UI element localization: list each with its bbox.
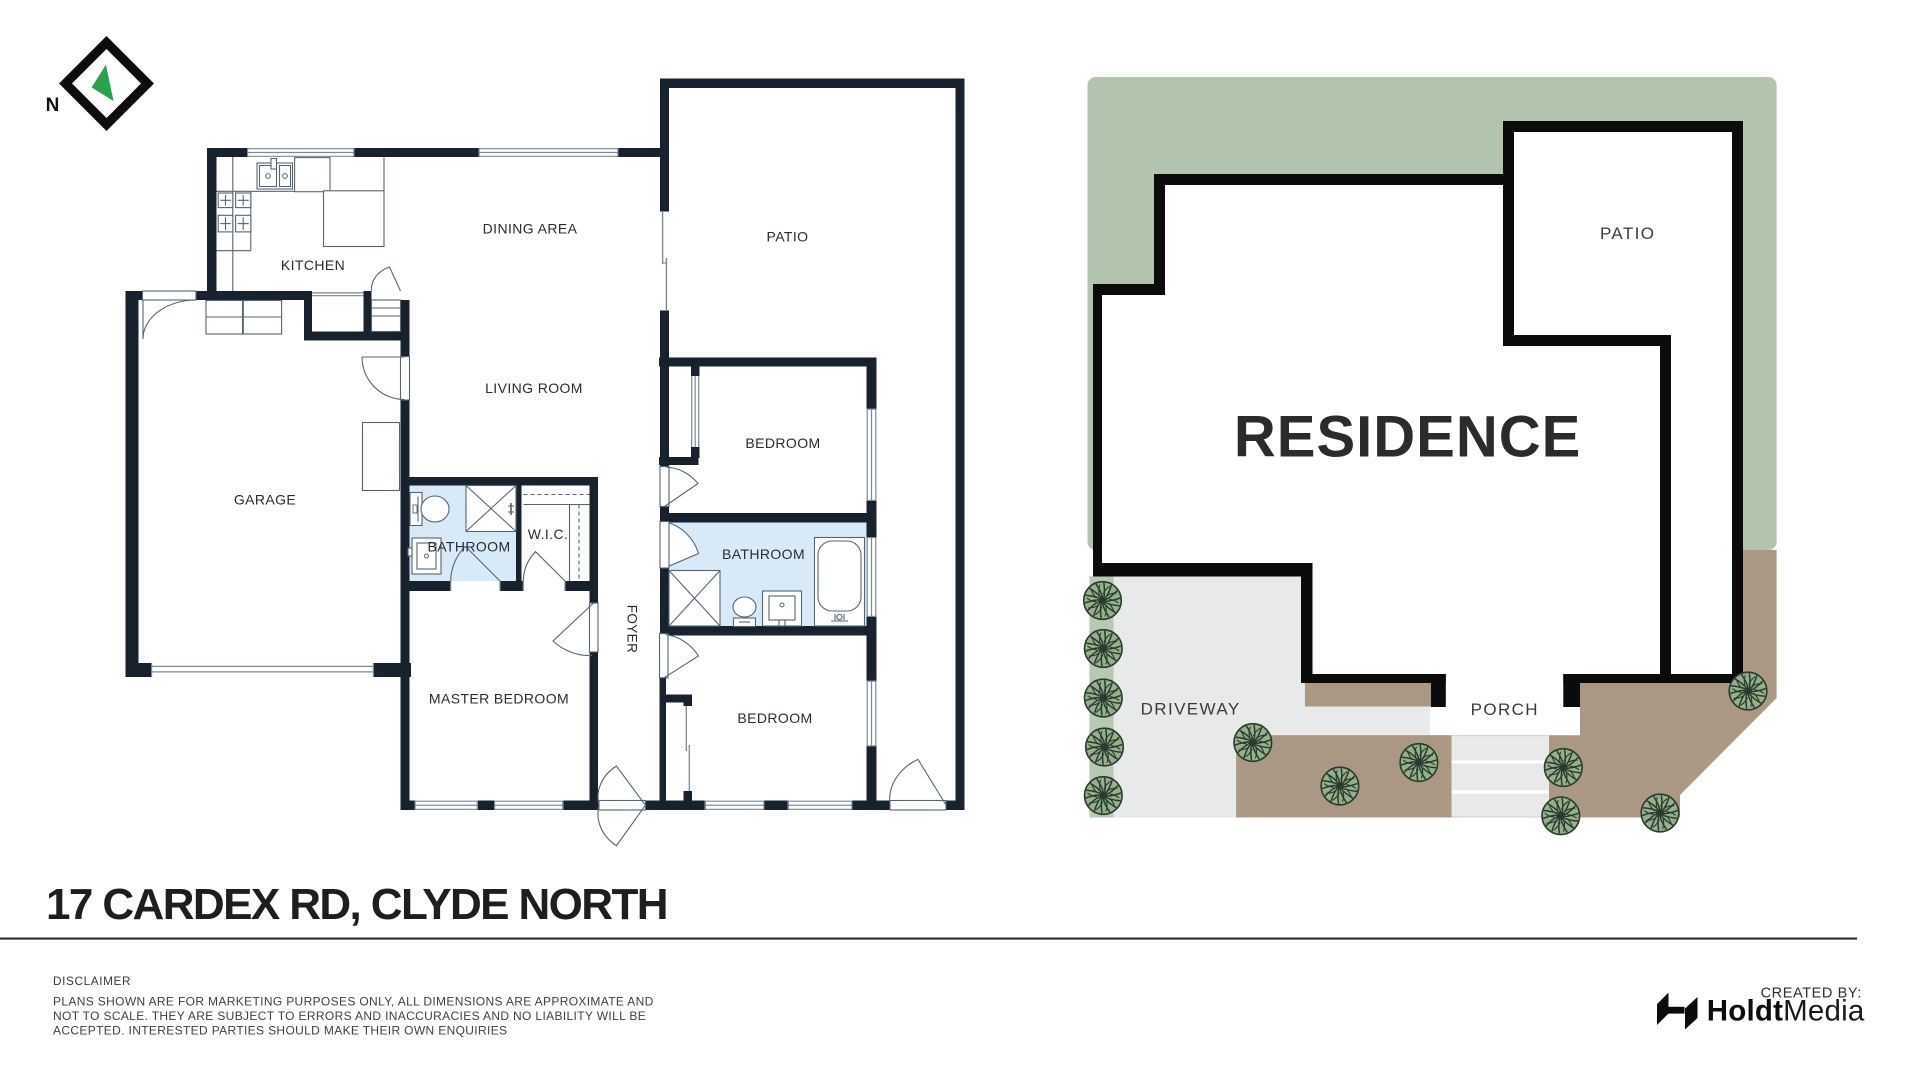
svg-text:DINING AREA: DINING AREA	[483, 221, 578, 237]
svg-text:HoldtMedia: HoldtMedia	[1707, 995, 1865, 1028]
svg-text:BEDROOM: BEDROOM	[745, 435, 820, 451]
svg-text:MASTER BEDROOM: MASTER BEDROOM	[429, 691, 569, 707]
svg-text:BATHROOM: BATHROOM	[427, 538, 510, 554]
svg-text:N: N	[46, 95, 60, 116]
svg-text:DISCLAIMER: DISCLAIMER	[53, 974, 131, 988]
svg-text:PATIO: PATIO	[1600, 224, 1656, 243]
svg-text:BEDROOM: BEDROOM	[737, 710, 812, 726]
svg-text:BATHROOM: BATHROOM	[722, 546, 805, 562]
svg-text:KITCHEN: KITCHEN	[281, 257, 345, 273]
svg-text:LIVING ROOM: LIVING ROOM	[485, 380, 583, 396]
svg-text:PLANS SHOWN ARE FOR MARKETING: PLANS SHOWN ARE FOR MARKETING PURPOSES O…	[53, 995, 654, 1009]
svg-text:RESIDENCE: RESIDENCE	[1234, 405, 1581, 470]
svg-text:DRIVEWAY: DRIVEWAY	[1141, 700, 1241, 719]
svg-text:ACCEPTED. INTERESTED PARTIES S: ACCEPTED. INTERESTED PARTIES SHOULD MAKE…	[53, 1024, 507, 1038]
svg-text:GARAGE: GARAGE	[234, 492, 296, 508]
svg-text:FOYER: FOYER	[625, 605, 640, 654]
svg-text:NOT TO SCALE. THEY ARE SUBJECT: NOT TO SCALE. THEY ARE SUBJECT TO ERRORS…	[53, 1009, 646, 1023]
svg-text:PORCH: PORCH	[1471, 700, 1539, 719]
svg-text:PATIO: PATIO	[767, 229, 809, 245]
svg-text:17 CARDEX RD, CLYDE NORTH: 17 CARDEX RD, CLYDE NORTH	[46, 880, 667, 929]
svg-text:W.I.C.: W.I.C.	[528, 526, 569, 542]
